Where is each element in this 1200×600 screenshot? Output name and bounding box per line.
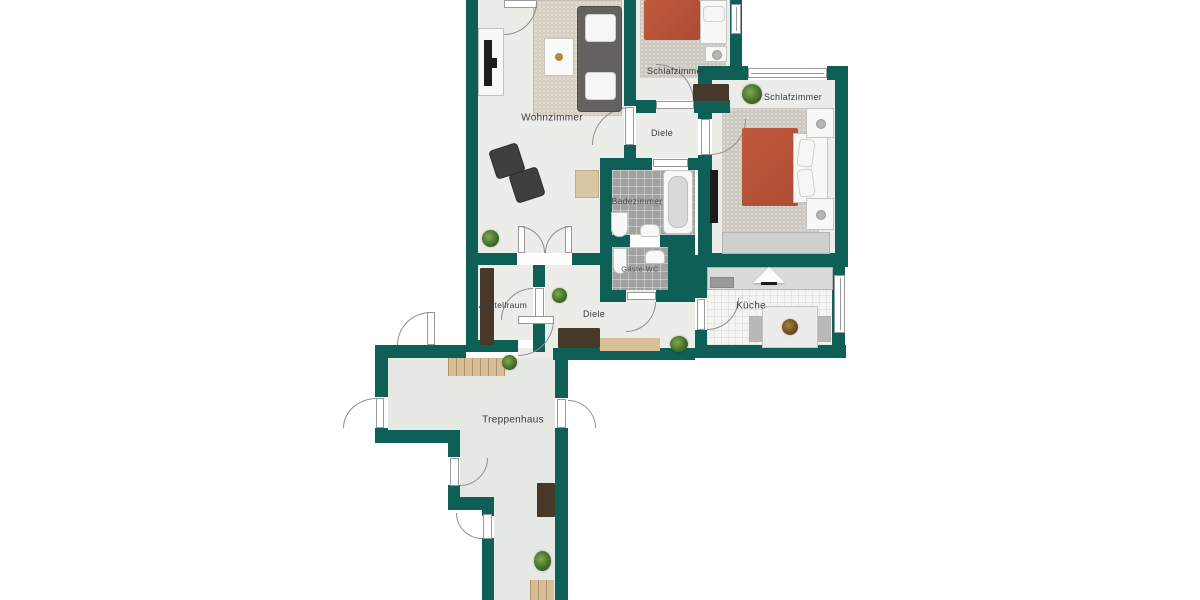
toilet — [645, 250, 665, 264]
wall-segment — [600, 235, 630, 247]
dresser — [693, 84, 729, 101]
door-leaf — [656, 101, 694, 109]
door-leaf — [701, 119, 710, 155]
wall-segment — [466, 253, 517, 265]
bedroom-bench — [722, 232, 830, 254]
wall-segment — [600, 158, 652, 170]
doormat — [600, 338, 660, 351]
table-decor — [555, 53, 563, 61]
window — [834, 275, 845, 333]
wall-segment — [375, 430, 460, 443]
wall-segment — [835, 66, 848, 260]
wall-segment — [695, 330, 707, 358]
bed-pillow — [796, 168, 815, 198]
wall-segment — [533, 265, 545, 287]
door-arc — [456, 513, 482, 539]
floor-plan: Wohnzimmer Schlafzimmer Schlafzimmer Die… — [0, 0, 1200, 600]
door-arc — [568, 400, 596, 428]
door-arc — [397, 312, 431, 345]
room-label-schlafzimmer-top: Schlafzimmer — [647, 66, 705, 76]
window-glass-line — [736, 7, 737, 31]
door-leaf — [557, 399, 566, 428]
wall-segment — [688, 158, 707, 170]
door-leaf — [483, 514, 492, 539]
extractor-hood — [753, 267, 785, 283]
chair — [818, 316, 831, 342]
room-label-treppenhaus: Treppenhaus — [482, 415, 544, 426]
cooktop — [710, 277, 734, 288]
bed-pillow — [796, 138, 815, 168]
wall-segment — [712, 66, 748, 80]
plant — [670, 336, 688, 352]
room-label-diele-top: Diele — [651, 128, 673, 138]
sofa-cushion — [585, 14, 616, 42]
bed-pillow — [703, 6, 725, 22]
single-bed-blanket — [644, 0, 700, 40]
double-bed-blanket — [742, 128, 798, 206]
plant — [502, 355, 517, 370]
wall-segment — [555, 428, 568, 600]
wall-segment — [600, 290, 626, 302]
door-leaf — [627, 292, 656, 300]
room-label-abstellraum: Abstellraum — [479, 300, 527, 310]
window — [748, 68, 827, 78]
room-label-kueche: Küche — [736, 301, 766, 312]
wall-segment — [668, 245, 695, 302]
tv-stand — [492, 58, 497, 68]
wall-segment — [572, 253, 600, 265]
door-arc — [343, 398, 377, 428]
nightstand-knob — [816, 119, 826, 129]
room-label-gaeste-wc: Gäste-WC — [621, 265, 658, 274]
bathtub-basin — [668, 176, 688, 228]
table-plant — [782, 319, 798, 335]
plant — [534, 551, 551, 571]
corridor-bench — [537, 483, 555, 517]
toilet — [640, 224, 660, 237]
wall-segment — [448, 443, 460, 457]
door-leaf — [653, 159, 688, 167]
chair — [749, 316, 762, 342]
wall-segment — [375, 345, 466, 358]
window-glass-line — [840, 278, 841, 330]
stove — [761, 282, 777, 285]
plant — [482, 230, 499, 247]
window — [731, 4, 741, 34]
room-label-wohnzimmer: Wohnzimmer — [521, 113, 583, 124]
staircase — [530, 580, 554, 600]
sideboard — [558, 328, 600, 348]
wall-segment — [656, 290, 668, 302]
wall-segment — [555, 350, 568, 398]
wall-segment — [482, 538, 494, 600]
wall-segment — [624, 0, 636, 106]
door-leaf — [376, 398, 384, 428]
nightstand-knob — [712, 50, 722, 60]
wall-segment — [448, 497, 494, 510]
wall-segment — [375, 345, 388, 397]
door-leaf — [450, 458, 459, 486]
room-label-badezimmer: Badezimmer — [612, 196, 663, 206]
washbasin — [611, 212, 628, 237]
plant — [742, 84, 762, 104]
room-label-schlafzimmer-right: Schlafzimmer — [764, 92, 822, 102]
side-table — [575, 170, 599, 198]
staircase — [448, 358, 505, 376]
wall-segment — [636, 100, 656, 113]
tv — [710, 170, 718, 223]
window-glass-line — [751, 73, 824, 74]
wall-segment — [448, 485, 460, 497]
wall-segment — [698, 253, 848, 267]
sofa-cushion — [585, 72, 616, 100]
tv — [484, 40, 492, 86]
room-label-diele-middle: Diele — [583, 309, 605, 319]
nightstand-knob — [816, 210, 826, 220]
door-leaf — [697, 299, 705, 330]
wall-segment — [695, 255, 707, 298]
plant — [552, 288, 567, 303]
wall-segment — [466, 0, 478, 352]
